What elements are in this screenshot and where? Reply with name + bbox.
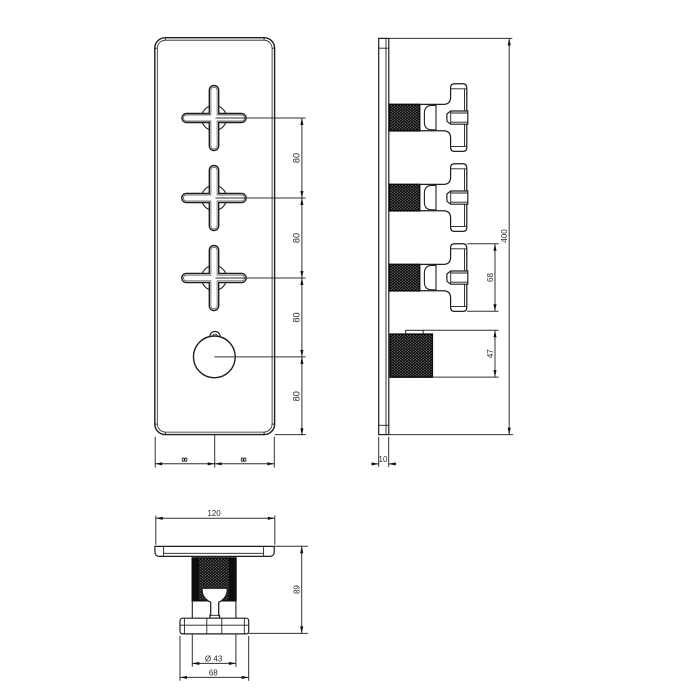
svg-text:10: 10 xyxy=(379,455,388,464)
svg-text:68: 68 xyxy=(486,273,495,282)
svg-text:80: 80 xyxy=(291,391,301,401)
svg-text:68: 68 xyxy=(209,668,218,677)
svg-text:80: 80 xyxy=(291,233,301,243)
svg-text:400: 400 xyxy=(500,229,509,243)
svg-text:89: 89 xyxy=(293,585,302,594)
svg-text:80: 80 xyxy=(291,312,301,322)
svg-text:Ø 43: Ø 43 xyxy=(205,654,223,663)
svg-text:120: 120 xyxy=(207,509,221,518)
svg-text:80: 80 xyxy=(291,153,301,163)
svg-text:47: 47 xyxy=(486,349,495,358)
